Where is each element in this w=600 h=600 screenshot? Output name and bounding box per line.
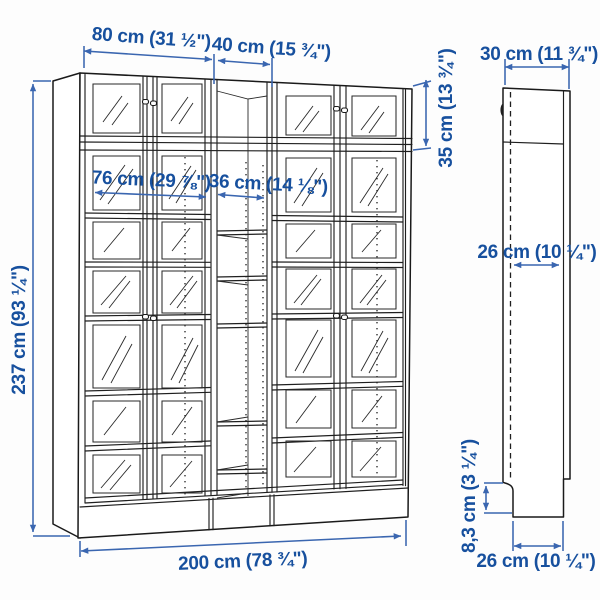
- dim-label: 30 cm (11 ¾"): [480, 44, 598, 65]
- dim-label: 8,3 cm (3 ¼"): [459, 439, 480, 553]
- dimension-diagram: 80 cm (31 ½") 40 cm (15 ¾") 30 cm (11 ¾"…: [0, 0, 600, 600]
- dim-side-inner-depth: 26 cm (10 ¼"): [477, 242, 596, 265]
- dim-label: 200 cm (78 ¾"): [178, 548, 308, 575]
- dim-label: 237 cm (93 ¼"): [9, 265, 30, 394]
- side-panel: [53, 73, 80, 538]
- dim-label: 26 cm (10 ¼"): [476, 551, 595, 572]
- dim-label: 40 cm (15 ¾"): [211, 34, 331, 63]
- dim-label: 35 cm (13 ¾"): [436, 48, 457, 167]
- dim-label: 80 cm (31 ½"): [91, 24, 211, 53]
- dim-side-depth: 30 cm (11 ¾"): [480, 44, 598, 89]
- dim-extension-height: 35 cm (13 ¾"): [413, 48, 457, 167]
- side-hinge-bump: [500, 104, 503, 117]
- bookcase-front-view: [53, 73, 412, 538]
- dim-label: 26 cm (10 ¼"): [477, 242, 596, 263]
- side-profile-outline: [503, 88, 570, 517]
- diagram-canvas: 80 cm (31 ½") 40 cm (15 ¾") 30 cm (11 ¾"…: [0, 0, 600, 600]
- dim-side-base-depth: 26 cm (10 ¼"): [476, 521, 595, 572]
- dim-unit-width-middle: 40 cm (15 ¾"): [211, 34, 331, 87]
- bookcase-side-view: [500, 88, 570, 517]
